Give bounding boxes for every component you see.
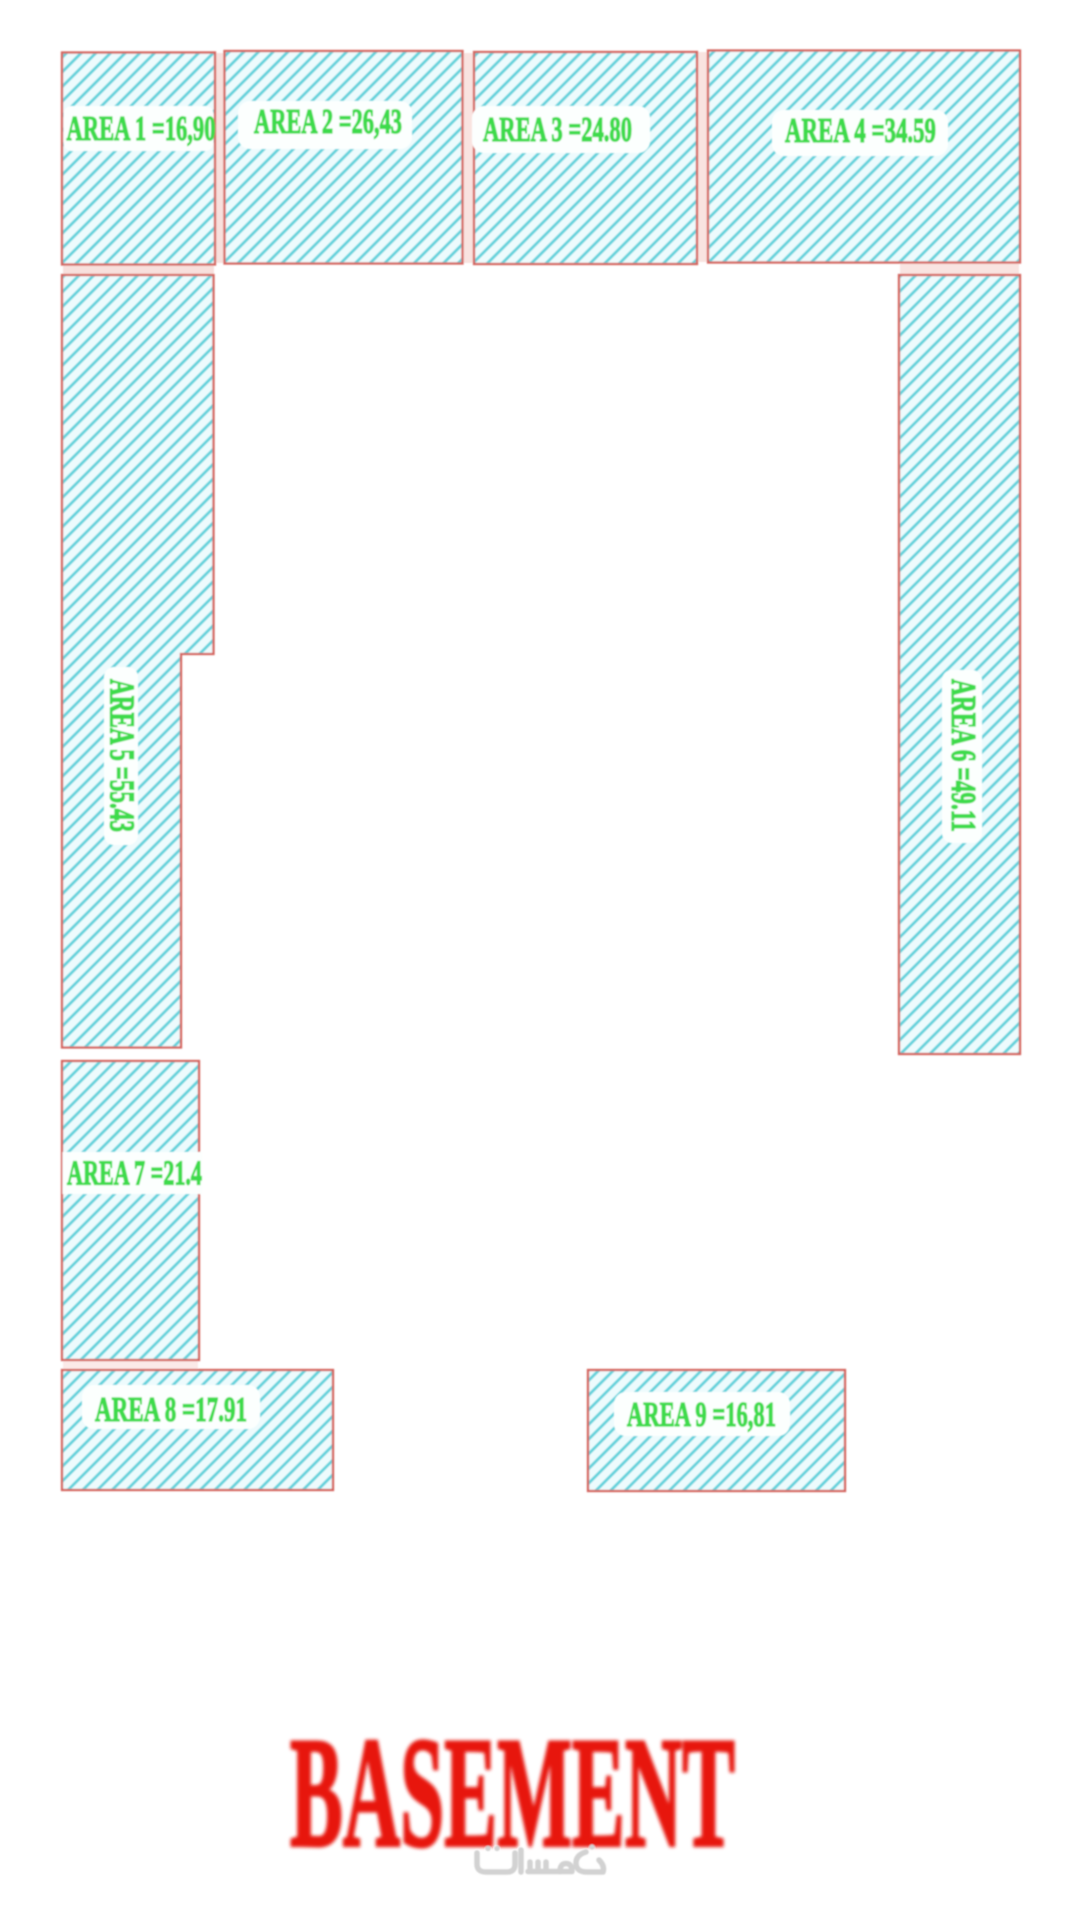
svg-text:AREA 9 =16,81: AREA 9 =16,81 — [627, 1395, 776, 1434]
svg-text:AREA 2 =26,43: AREA 2 =26,43 — [254, 102, 402, 141]
svg-text:AREA 3 =24.80: AREA 3 =24.80 — [483, 110, 632, 149]
svg-text:AREA 4 =34.59: AREA 4 =34.59 — [785, 111, 936, 150]
svg-text:AREA 5 =55.43: AREA 5 =55.43 — [103, 679, 142, 832]
svg-text:AREA 8 =17.91: AREA 8 =17.91 — [95, 1390, 247, 1429]
svg-text:AREA 6 =49.11: AREA 6 =49.11 — [944, 679, 983, 832]
svg-text:AREA 7 =21.4: AREA 7 =21.4 — [67, 1154, 202, 1193]
svg-text:AREA 1 =16,90: AREA 1 =16,90 — [67, 109, 216, 148]
